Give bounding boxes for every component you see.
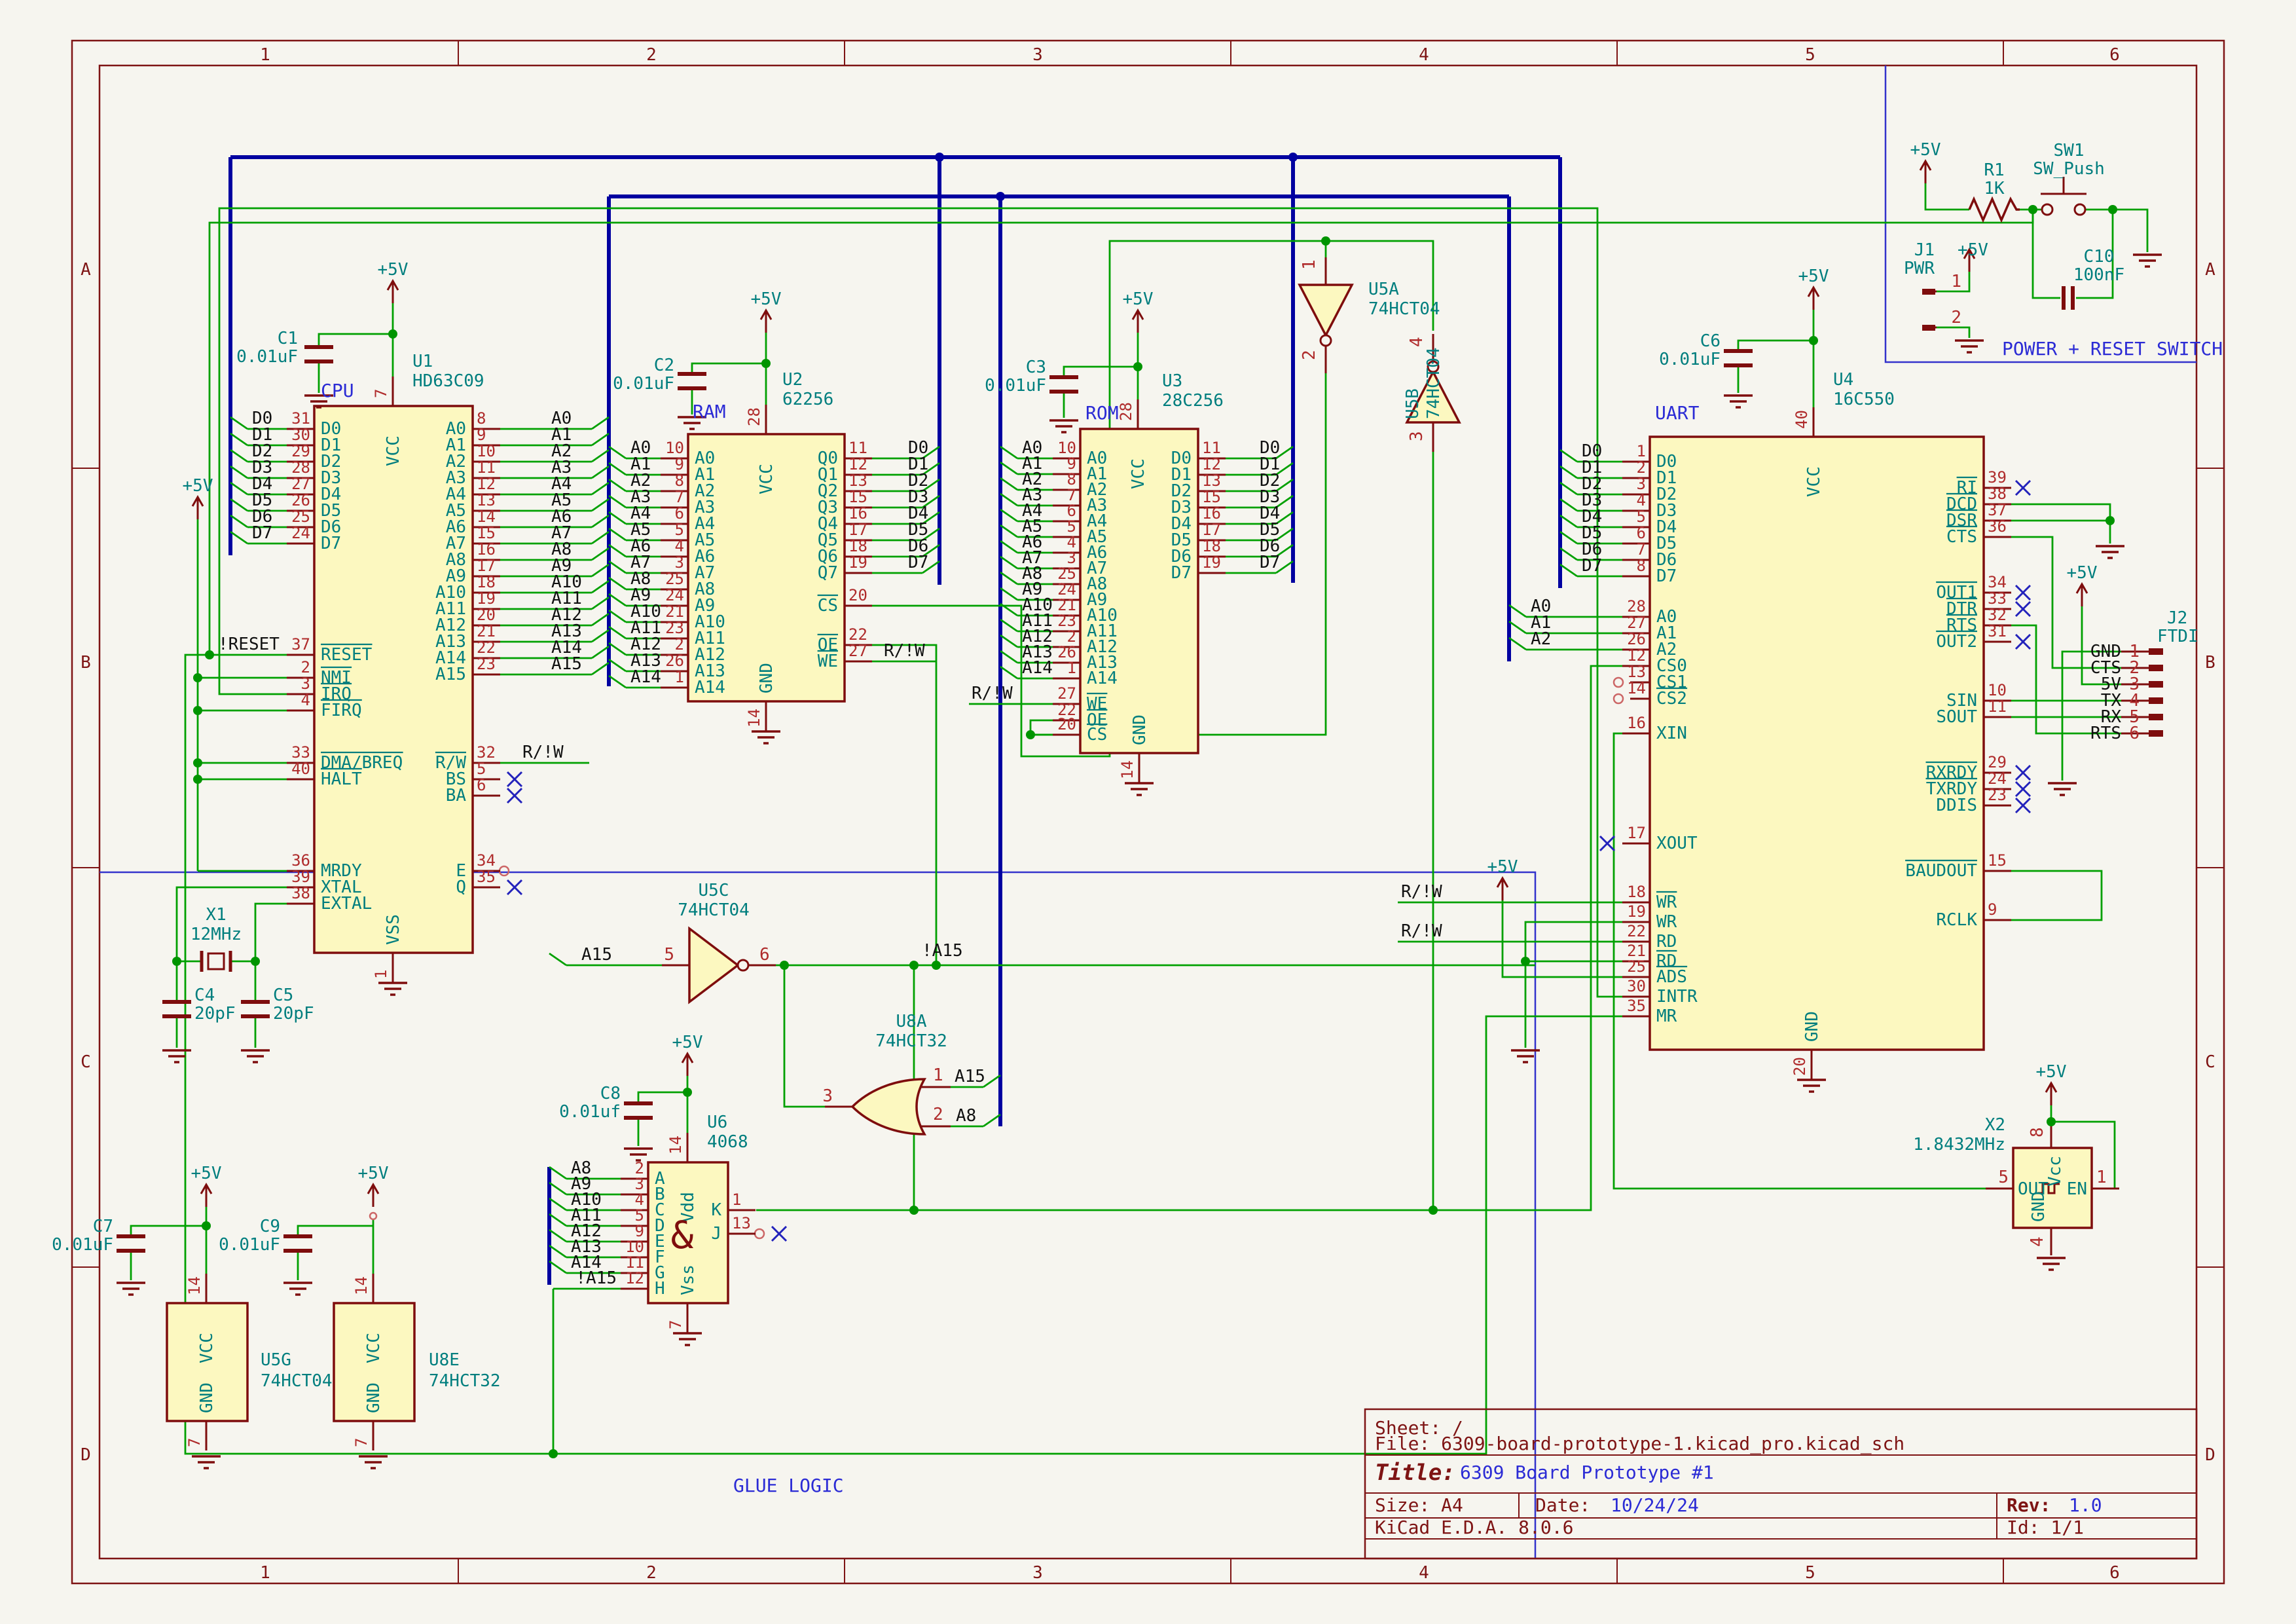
- pin-name[interactable]: K: [711, 1200, 721, 1220]
- junction-dot[interactable]: [549, 1449, 558, 1458]
- pin-number[interactable]: 8: [1637, 557, 1646, 575]
- net-label[interactable]: R/!W: [522, 743, 564, 762]
- pin-number[interactable]: 30: [291, 426, 310, 444]
- junction-dot[interactable]: [1809, 336, 1818, 345]
- component-label[interactable]: C8: [600, 1084, 621, 1103]
- pin-number[interactable]: 17: [1627, 824, 1646, 842]
- pin-name[interactable]: EXTAL: [321, 894, 372, 913]
- component-label[interactable]: C5: [273, 986, 293, 1005]
- pin-number[interactable]: 3: [301, 674, 310, 693]
- component-label[interactable]: U5A: [1368, 280, 1399, 299]
- component-label[interactable]: 0.01uF: [613, 374, 674, 394]
- pin-name[interactable]: Q7: [818, 563, 838, 583]
- component-label[interactable]: 28C256: [1162, 391, 1224, 411]
- pin-number[interactable]: 36: [1988, 517, 2007, 536]
- pin-number[interactable]: 5: [664, 945, 674, 965]
- section-label[interactable]: UART: [1655, 402, 1700, 424]
- pin-number[interactable]: 25: [291, 507, 310, 526]
- component-label[interactable]: 1K: [1984, 179, 2005, 198]
- component-label[interactable]: 4068: [707, 1132, 748, 1152]
- component-label[interactable]: C4: [194, 986, 215, 1005]
- pin-name[interactable]: VCC: [757, 464, 776, 494]
- pin-number[interactable]: 10: [1988, 681, 2007, 699]
- pin-number[interactable]: 12: [477, 475, 496, 493]
- pin-number[interactable]: 16: [1202, 504, 1221, 523]
- pin-number[interactable]: 6: [759, 945, 770, 965]
- pin-number[interactable]: 27: [1627, 614, 1646, 632]
- pin-number[interactable]: 5: [477, 760, 486, 778]
- pin-number[interactable]: 13: [732, 1214, 751, 1232]
- component-label[interactable]: U1: [412, 352, 433, 371]
- pin-name[interactable]: FIRQ: [321, 701, 362, 720]
- pin-number[interactable]: 11: [848, 439, 867, 457]
- pin-number[interactable]: 11: [1202, 439, 1221, 457]
- junction-dot[interactable]: [202, 1221, 211, 1230]
- pin-number[interactable]: 29: [1988, 753, 2007, 771]
- component-label[interactable]: 0.01uF: [1659, 350, 1721, 369]
- component-label[interactable]: 74HCT32: [875, 1031, 947, 1051]
- pin-name[interactable]: GND: [197, 1382, 217, 1413]
- pin-number[interactable]: 14: [745, 709, 763, 728]
- pin-number[interactable]: 22: [848, 625, 867, 644]
- pin-name[interactable]: VCC: [384, 435, 403, 466]
- pin-number[interactable]: 12: [848, 455, 867, 473]
- pin-number[interactable]: 14: [1118, 760, 1137, 779]
- component-label[interactable]: +5V: [1123, 289, 1154, 309]
- component-label[interactable]: 20pF: [194, 1004, 236, 1024]
- pin-number[interactable]: 6: [2129, 724, 2140, 743]
- connector-pad[interactable]: [1922, 325, 1935, 331]
- pin-number[interactable]: 11: [477, 458, 496, 477]
- component-label[interactable]: GND: [2029, 1191, 2049, 1222]
- pin-number[interactable]: 3: [822, 1086, 833, 1106]
- pin-name[interactable]: CS: [1087, 725, 1107, 745]
- pin-number[interactable]: 32: [477, 743, 496, 762]
- pin-number[interactable]: 1: [933, 1065, 943, 1085]
- component-label[interactable]: PWR: [1904, 259, 1935, 278]
- junction-dot[interactable]: [909, 961, 919, 970]
- pin-number[interactable]: 2: [675, 635, 684, 654]
- section-label[interactable]: RAM: [693, 401, 726, 422]
- component-label[interactable]: C3: [1026, 358, 1046, 377]
- pin-number[interactable]: 21: [477, 622, 496, 640]
- junction-dot[interactable]: [205, 650, 214, 659]
- component-label[interactable]: 74HCT04: [1368, 299, 1440, 319]
- component-label[interactable]: +5V: [1958, 240, 1988, 260]
- pin-name[interactable]: VSS: [384, 914, 403, 945]
- junction-dot[interactable]: [761, 359, 771, 368]
- pin-number[interactable]: 18: [1202, 537, 1221, 555]
- pin-number[interactable]: 27: [291, 475, 310, 493]
- component-label[interactable]: C6: [1700, 331, 1721, 351]
- pin-number[interactable]: 24: [1988, 769, 2007, 788]
- pin-name[interactable]: GND: [364, 1382, 384, 1413]
- component-label[interactable]: U5G: [261, 1350, 291, 1370]
- pin-number[interactable]: 31: [291, 409, 310, 428]
- junction-dot[interactable]: [193, 673, 202, 682]
- pin-number[interactable]: 28: [1627, 597, 1646, 616]
- pin-number[interactable]: 16: [477, 540, 496, 559]
- junction-dot[interactable]: [2028, 205, 2037, 214]
- pin-number[interactable]: 34: [1988, 573, 2007, 591]
- pin-number[interactable]: 18: [477, 573, 496, 591]
- pin-number[interactable]: 17: [1202, 521, 1221, 539]
- pin-number[interactable]: 4: [1637, 491, 1646, 509]
- net-label[interactable]: D7: [252, 523, 272, 543]
- connector-pad[interactable]: [2149, 697, 2163, 704]
- junction-dot[interactable]: [388, 329, 397, 339]
- pin-name[interactable]: H: [655, 1279, 665, 1299]
- pin-number[interactable]: 33: [291, 743, 310, 762]
- component-label[interactable]: 0.01uf: [559, 1102, 621, 1122]
- pin-number[interactable]: 14: [185, 1276, 204, 1295]
- pin-number[interactable]: 17: [848, 521, 867, 539]
- component-label[interactable]: Vcc: [2045, 1156, 2065, 1187]
- chip-body[interactable]: [1650, 437, 1984, 1050]
- pin-number[interactable]: 3: [1637, 475, 1646, 493]
- pin-name[interactable]: WR: [1656, 893, 1677, 912]
- component-label[interactable]: +5V: [672, 1033, 703, 1052]
- pin-number[interactable]: 14: [477, 507, 496, 526]
- junction-dot[interactable]: [1133, 362, 1142, 371]
- pin-number[interactable]: 36: [291, 851, 310, 870]
- component-label[interactable]: EN: [2067, 1179, 2087, 1199]
- pin-number[interactable]: 28: [291, 458, 310, 477]
- pin-name[interactable]: BAUDOUT: [1905, 861, 1977, 881]
- pin-number[interactable]: 34: [477, 851, 496, 870]
- component-label[interactable]: C9: [260, 1217, 280, 1236]
- pin-number[interactable]: 11: [1988, 697, 2007, 716]
- section-label[interactable]: CPU: [321, 380, 354, 401]
- component-label[interactable]: U5B: [1403, 388, 1423, 419]
- pin-number[interactable]: 7: [352, 1438, 371, 1447]
- component-label[interactable]: U8E: [429, 1350, 460, 1370]
- pin-name[interactable]: GND: [1130, 714, 1150, 745]
- pin-number[interactable]: 27: [848, 642, 867, 660]
- pin-number[interactable]: 1: [1637, 442, 1646, 460]
- pin-number[interactable]: 15: [1202, 488, 1221, 506]
- pin-number[interactable]: 1: [1300, 259, 1319, 270]
- component-label[interactable]: X2: [1985, 1115, 2005, 1135]
- pin-number[interactable]: 16: [1627, 714, 1646, 732]
- pin-number[interactable]: 5: [675, 521, 684, 539]
- pin-number[interactable]: 20: [477, 606, 496, 624]
- pin-number[interactable]: 33: [1988, 589, 2007, 608]
- component-label[interactable]: U3: [1162, 371, 1182, 391]
- junction-dot[interactable]: [193, 775, 202, 784]
- junction-dot[interactable]: [780, 961, 789, 970]
- pin-number[interactable]: 1: [1951, 272, 1961, 291]
- pin-number[interactable]: 37: [1988, 501, 2007, 519]
- pin-number[interactable]: 15: [477, 524, 496, 542]
- net-label[interactable]: D7: [1582, 556, 1602, 576]
- pin-name[interactable]: BA: [446, 786, 467, 805]
- pin-number[interactable]: 20: [1057, 715, 1076, 733]
- net-label[interactable]: A15: [551, 654, 582, 674]
- junction-dot[interactable]: [251, 957, 260, 966]
- component-label[interactable]: 0.01uF: [985, 376, 1046, 396]
- pin-number[interactable]: 10: [477, 442, 496, 460]
- pin-name[interactable]: CS: [818, 596, 838, 616]
- net-label[interactable]: !RESET: [218, 635, 280, 654]
- connector-pad[interactable]: [2149, 665, 2163, 671]
- pin-number[interactable]: 14: [1627, 679, 1646, 697]
- pin-number[interactable]: 12: [1202, 455, 1221, 473]
- pin-number[interactable]: 35: [477, 868, 496, 886]
- pin-name[interactable]: RESET: [321, 645, 373, 665]
- junction-dot[interactable]: [1026, 730, 1035, 739]
- pin-number[interactable]: 5: [1998, 1168, 2009, 1187]
- pin-number[interactable]: 13: [477, 491, 496, 509]
- net-label[interactable]: A2: [1531, 629, 1551, 649]
- component-label[interactable]: +5V: [2067, 563, 2098, 583]
- component-label[interactable]: 74HCT04: [1424, 347, 1444, 419]
- pin-number[interactable]: 1: [2096, 1168, 2107, 1187]
- junction-dot[interactable]: [2108, 205, 2117, 214]
- junction-dot[interactable]: [193, 758, 202, 767]
- pin-number[interactable]: 38: [1988, 485, 2007, 503]
- pin-name[interactable]: VCC: [1804, 466, 1824, 497]
- net-label[interactable]: R/!W: [884, 641, 925, 661]
- pin-number[interactable]: 8: [675, 471, 684, 490]
- pin-name[interactable]: CTS: [1946, 527, 1977, 547]
- pin-name[interactable]: VCC: [1129, 458, 1148, 489]
- net-label[interactable]: A8: [956, 1106, 976, 1126]
- net-label[interactable]: R/!W: [972, 684, 1013, 703]
- pin-number[interactable]: 22: [1627, 922, 1646, 940]
- component-label[interactable]: 0.01uF: [219, 1235, 280, 1255]
- pin-name[interactable]: GND: [757, 663, 776, 693]
- component-label[interactable]: 74HCT04: [261, 1371, 333, 1391]
- pin-number[interactable]: 14: [352, 1276, 371, 1295]
- connector-pad[interactable]: [2149, 714, 2163, 720]
- section-label[interactable]: GLUE LOGIC: [733, 1475, 844, 1496]
- pin-number[interactable]: 13: [1202, 471, 1221, 490]
- pin-name[interactable]: WR: [1656, 912, 1677, 932]
- junction-dot[interactable]: [1321, 236, 1330, 246]
- pin-number[interactable]: 26: [1627, 630, 1646, 648]
- pin-number[interactable]: 4: [2028, 1236, 2047, 1247]
- pin-number[interactable]: 8: [2028, 1127, 2047, 1137]
- pin-number[interactable]: 2: [933, 1105, 943, 1124]
- pin-number[interactable]: 7: [675, 488, 684, 506]
- pin-name[interactable]: VCC: [364, 1333, 384, 1363]
- pin-number[interactable]: 32: [1988, 606, 2007, 624]
- pin-name[interactable]: DDIS: [1936, 796, 1977, 815]
- component-label[interactable]: FTDI: [2157, 627, 2198, 646]
- net-label[interactable]: A14: [630, 667, 661, 687]
- connector-pad[interactable]: [2149, 681, 2163, 688]
- pin-name[interactable]: A14: [695, 678, 725, 697]
- component-label[interactable]: X1: [206, 905, 226, 925]
- pin-number[interactable]: 18: [848, 537, 867, 555]
- component-label[interactable]: U5C: [699, 881, 729, 900]
- component-label[interactable]: SW_Push: [2033, 159, 2105, 179]
- pin-number[interactable]: 19: [1202, 553, 1221, 572]
- junction-dot[interactable]: [172, 957, 181, 966]
- component-label[interactable]: 62256: [782, 390, 833, 409]
- component-label[interactable]: 100nF: [2073, 265, 2124, 285]
- component-label[interactable]: SW1: [2054, 141, 2085, 160]
- pin-number[interactable]: 2: [1951, 308, 1961, 327]
- pin-number[interactable]: 25: [1627, 957, 1646, 976]
- component-label[interactable]: 0.01uF: [52, 1235, 113, 1255]
- junction-dot[interactable]: [193, 706, 202, 715]
- junction-dot[interactable]: [932, 961, 941, 970]
- junction-dot[interactable]: [1429, 1206, 1438, 1215]
- pin-number[interactable]: 1: [1067, 659, 1076, 677]
- pin-number[interactable]: 28: [1117, 402, 1135, 421]
- pin-number[interactable]: 13: [1627, 663, 1646, 681]
- section-label[interactable]: ROM: [1085, 402, 1119, 424]
- pin-number[interactable]: 17: [477, 557, 496, 575]
- component-label[interactable]: HD63C09: [412, 371, 484, 391]
- junction-dot[interactable]: [683, 1088, 692, 1097]
- connector-pad[interactable]: [1922, 289, 1935, 295]
- component-label[interactable]: J2: [2167, 608, 2187, 628]
- pin-number[interactable]: 15: [848, 488, 867, 506]
- pin-name[interactable]: INTR: [1656, 987, 1698, 1006]
- pin-number[interactable]: 4: [675, 537, 684, 555]
- pin-number[interactable]: 35: [1627, 997, 1646, 1015]
- pin-name[interactable]: A15: [435, 665, 466, 684]
- pin-number[interactable]: 12: [1627, 646, 1646, 665]
- pin-number[interactable]: 7: [372, 389, 390, 398]
- component-label[interactable]: C1: [278, 329, 298, 348]
- pin-number[interactable]: 20: [848, 586, 867, 604]
- pin-number[interactable]: 7: [1637, 540, 1646, 559]
- net-label[interactable]: D7: [908, 553, 928, 572]
- component-label[interactable]: +5V: [378, 260, 409, 280]
- pin-number[interactable]: 19: [848, 553, 867, 572]
- net-label[interactable]: A14: [1022, 658, 1053, 678]
- pin-number[interactable]: 10: [665, 439, 684, 457]
- pin-number[interactable]: 28: [745, 407, 763, 426]
- net-label[interactable]: &: [671, 1213, 694, 1257]
- pin-number[interactable]: 12: [625, 1269, 644, 1287]
- pin-name[interactable]: Vss: [678, 1264, 698, 1295]
- component-label[interactable]: C10: [2084, 247, 2115, 267]
- component-label[interactable]: +5V: [191, 1164, 222, 1183]
- junction-dot[interactable]: [909, 1206, 919, 1215]
- junction-dot[interactable]: [2105, 516, 2115, 525]
- pin-number[interactable]: 9: [477, 426, 486, 444]
- component-label[interactable]: +5V: [183, 476, 213, 496]
- pin-name[interactable]: D7: [1656, 566, 1677, 586]
- pin-number[interactable]: 31: [1988, 622, 2007, 640]
- component-label[interactable]: U4: [1833, 370, 1853, 390]
- pin-number[interactable]: 23: [477, 655, 496, 673]
- pin-number[interactable]: 4: [1407, 337, 1427, 347]
- net-label[interactable]: A15: [581, 945, 612, 965]
- pin-name[interactable]: Q: [456, 877, 466, 897]
- pin-name[interactable]: WE: [818, 652, 838, 671]
- pin-number[interactable]: 19: [1627, 902, 1646, 921]
- pin-number[interactable]: 2: [1300, 350, 1319, 360]
- pin-number[interactable]: 8: [477, 409, 486, 428]
- pin-number[interactable]: 4: [301, 691, 310, 709]
- pin-name[interactable]: SOUT: [1936, 707, 1977, 727]
- net-label[interactable]: R/!W: [1401, 921, 1442, 941]
- pin-number[interactable]: 5: [1637, 507, 1646, 526]
- connector-pad[interactable]: [2149, 648, 2163, 655]
- net-label[interactable]: !A15: [575, 1268, 617, 1288]
- pin-number[interactable]: 9: [1988, 900, 1997, 919]
- pin-number[interactable]: 2: [1637, 458, 1646, 477]
- component-label[interactable]: C2: [654, 356, 674, 375]
- pin-name[interactable]: MR: [1656, 1006, 1677, 1026]
- pin-number[interactable]: 27: [1057, 684, 1076, 703]
- pin-number[interactable]: 40: [1793, 410, 1811, 429]
- pin-number[interactable]: 37: [291, 635, 310, 654]
- pin-name[interactable]: RD: [1656, 932, 1677, 951]
- pin-number[interactable]: 24: [665, 586, 684, 604]
- junction-dot[interactable]: [2047, 1117, 2056, 1126]
- pin-name[interactable]: VCC: [197, 1333, 217, 1363]
- pin-number[interactable]: 24: [291, 524, 310, 542]
- component-label[interactable]: 1.8432MHz: [1913, 1135, 2005, 1154]
- pin-number[interactable]: 15: [1988, 851, 2007, 870]
- pin-number[interactable]: 26: [291, 491, 310, 509]
- component-label[interactable]: 16C550: [1833, 390, 1895, 409]
- pin-name[interactable]: D7: [1171, 563, 1192, 583]
- component-label[interactable]: 74HCT32: [429, 1371, 501, 1391]
- pin-number[interactable]: 23: [1988, 786, 2007, 804]
- junction-dot[interactable]: [1288, 153, 1298, 162]
- pin-number[interactable]: 2: [301, 658, 310, 676]
- pin-name[interactable]: CS2: [1656, 689, 1687, 709]
- pin-number[interactable]: 3: [1407, 431, 1427, 441]
- pin-number[interactable]: 26: [665, 652, 684, 670]
- pin-number[interactable]: 6: [1637, 524, 1646, 542]
- component-label[interactable]: J1: [1914, 240, 1935, 260]
- pin-number[interactable]: 22: [477, 638, 496, 657]
- component-label[interactable]: +5V: [1487, 857, 1518, 877]
- pin-number[interactable]: 21: [665, 602, 684, 621]
- pin-number[interactable]: 1: [372, 970, 390, 979]
- component-label[interactable]: U8A: [896, 1012, 927, 1031]
- component-label[interactable]: +5V: [1910, 140, 1941, 160]
- pin-number[interactable]: 7: [185, 1438, 204, 1447]
- pin-number[interactable]: 38: [291, 884, 310, 902]
- junction-dot[interactable]: [935, 153, 944, 162]
- pin-number[interactable]: 18: [1627, 883, 1646, 901]
- pin-number[interactable]: 1: [732, 1190, 741, 1209]
- pin-name[interactable]: A14: [1087, 669, 1118, 688]
- pin-number[interactable]: 6: [675, 504, 684, 523]
- pin-number[interactable]: 25: [665, 570, 684, 588]
- pin-number[interactable]: 23: [665, 619, 684, 637]
- component-label[interactable]: 74HCT04: [678, 900, 750, 920]
- component-label[interactable]: +5V: [751, 289, 782, 309]
- pin-name[interactable]: HALT: [321, 769, 362, 789]
- net-label[interactable]: !A15: [922, 941, 963, 961]
- component-label[interactable]: R1: [1984, 160, 2004, 180]
- pin-name[interactable]: J: [711, 1224, 721, 1244]
- pin-number[interactable]: 30: [1627, 977, 1646, 995]
- component-label[interactable]: 20pF: [273, 1004, 314, 1024]
- pin-name[interactable]: D7: [321, 534, 341, 553]
- pin-number[interactable]: 40: [291, 760, 310, 778]
- net-label[interactable]: A15: [955, 1067, 985, 1086]
- pin-number[interactable]: 20: [1791, 1057, 1809, 1076]
- pin-number[interactable]: 19: [477, 589, 496, 608]
- pin-name[interactable]: RCLK: [1936, 910, 1977, 930]
- pin-number[interactable]: 9: [675, 455, 684, 473]
- component-label[interactable]: C7: [93, 1217, 113, 1236]
- component-label[interactable]: +5V: [358, 1164, 389, 1183]
- pin-number[interactable]: 29: [291, 442, 310, 460]
